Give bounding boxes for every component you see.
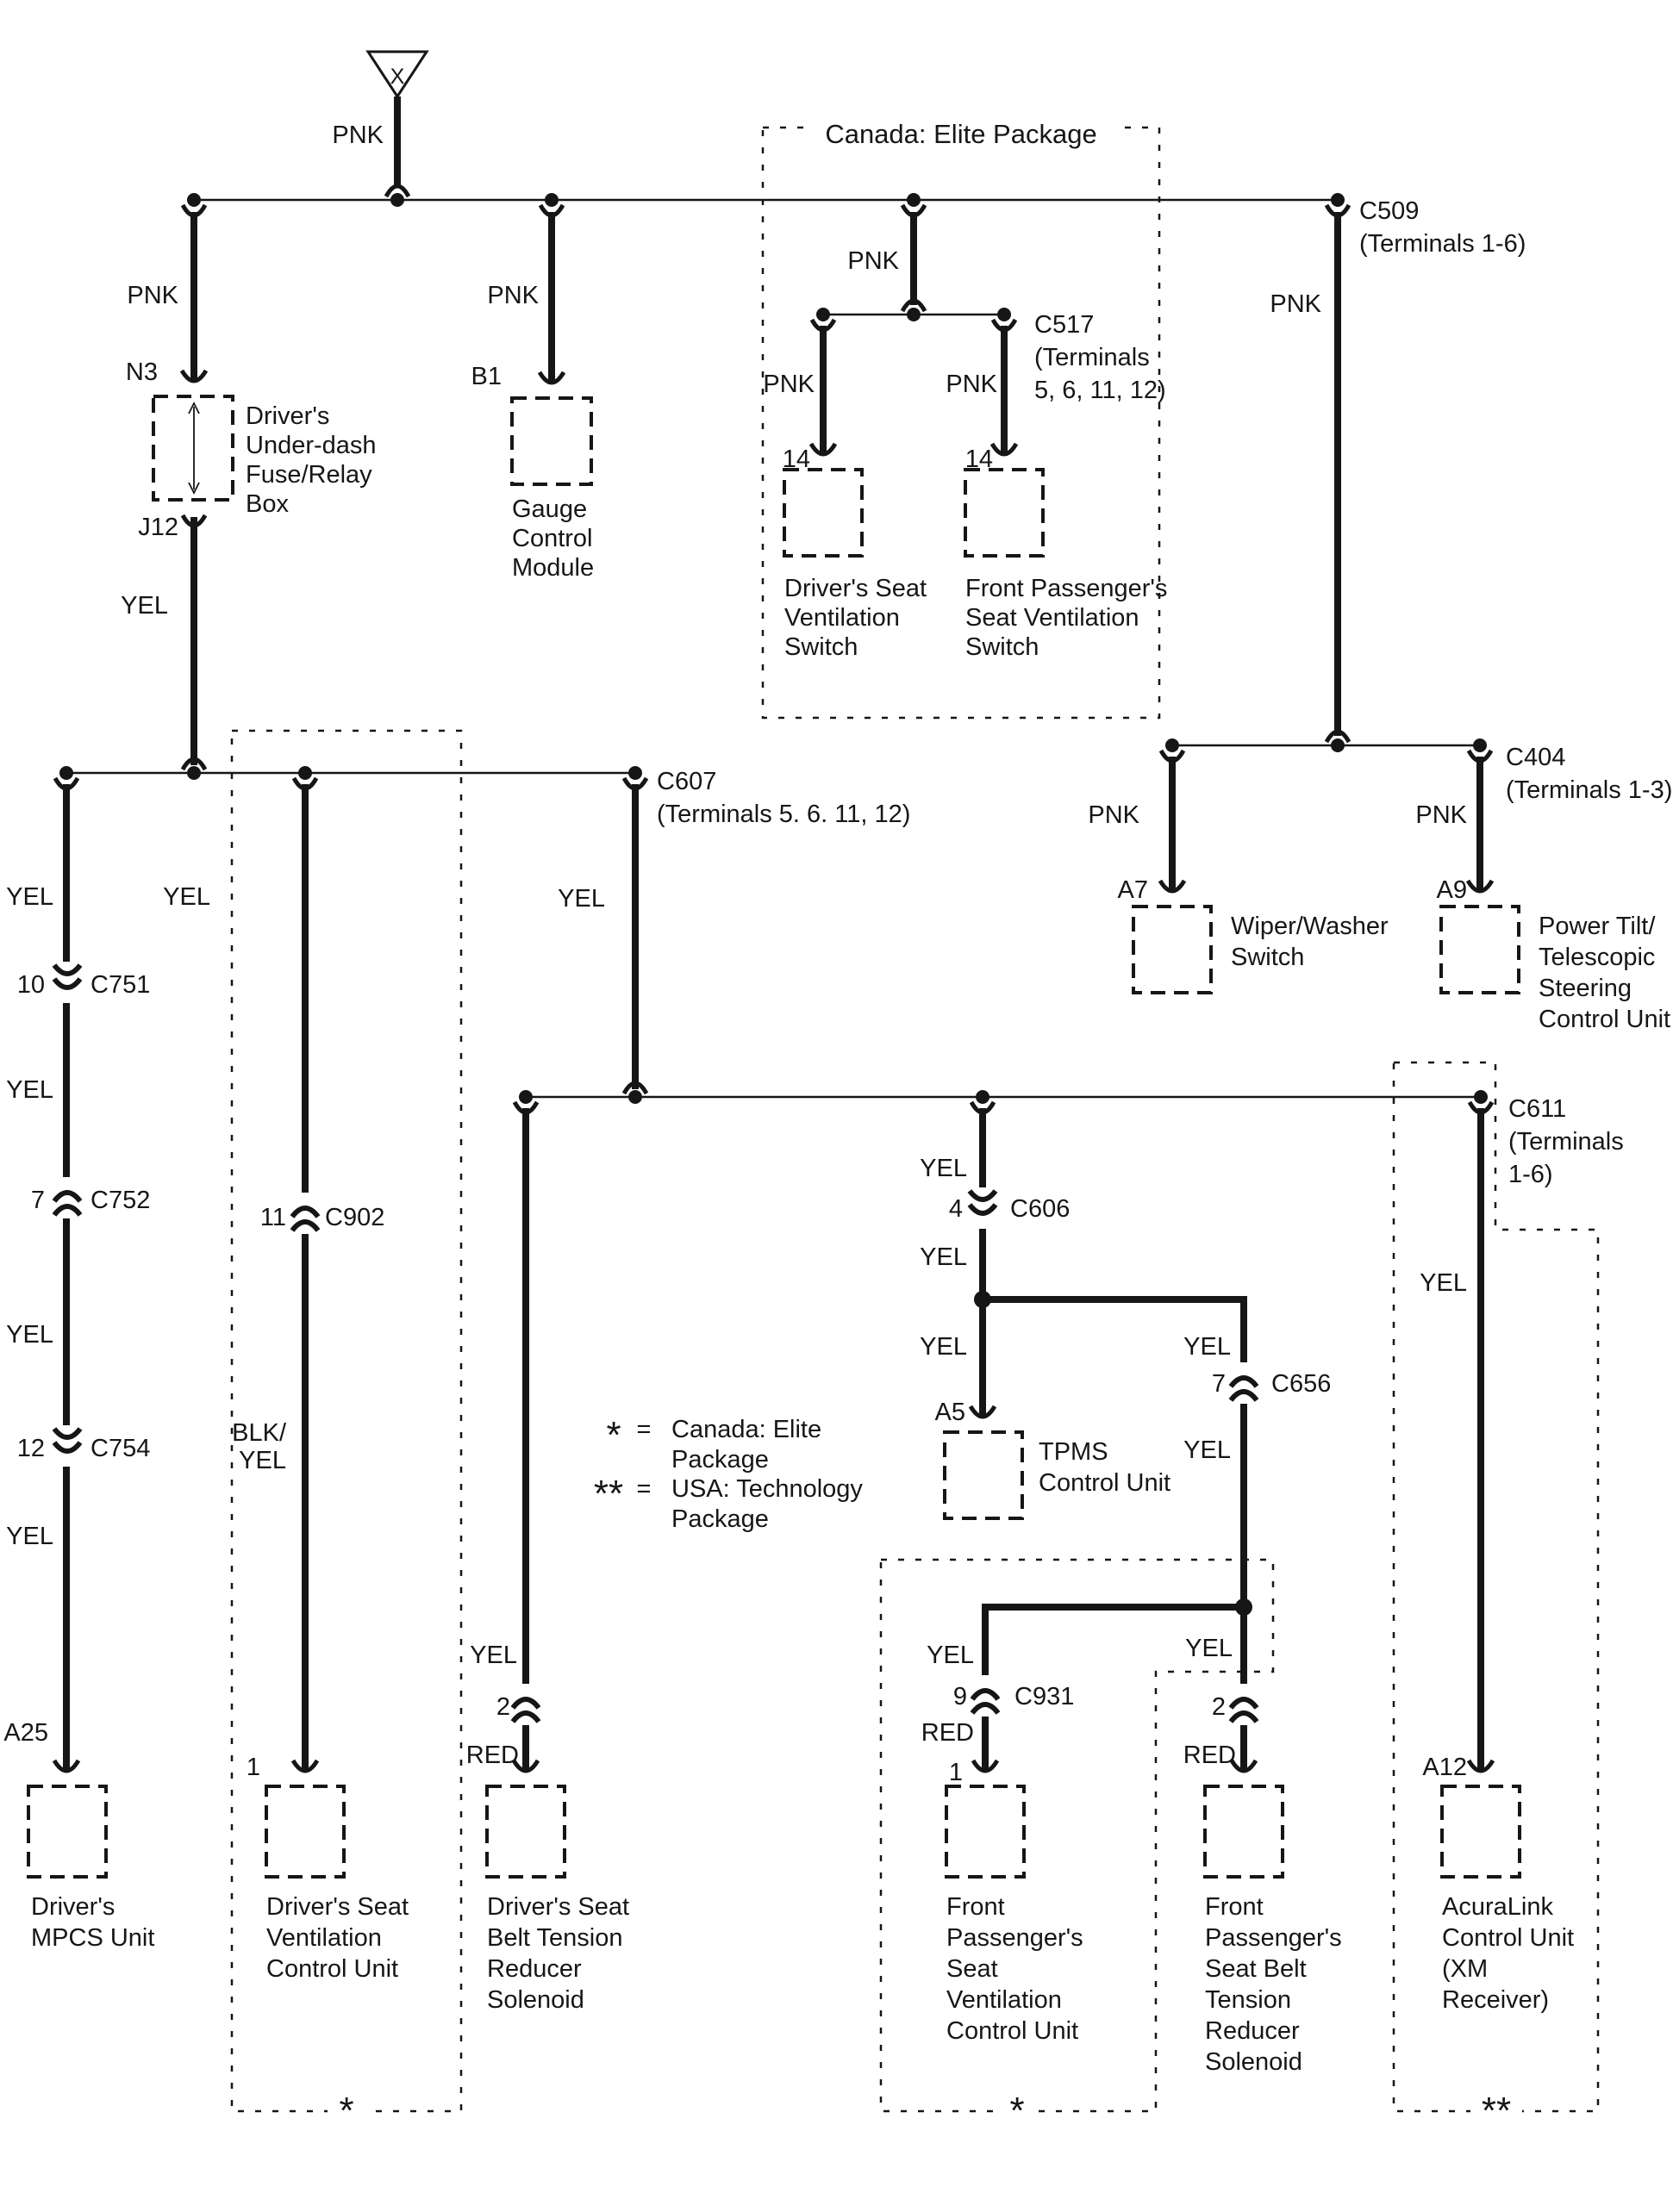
pin-label-1: 1 bbox=[949, 1759, 963, 1786]
component-label-acuralink: (XM bbox=[1442, 1955, 1488, 1983]
component-label-driver-belt: Belt Tension bbox=[487, 1924, 622, 1952]
component-label-driver-belt: Solenoid bbox=[487, 1986, 584, 2014]
wire-color-label: YEL bbox=[6, 1076, 53, 1104]
junction-dot bbox=[628, 1090, 642, 1104]
pin-label-10: 10 bbox=[17, 971, 45, 999]
component-box-front-vent-switch bbox=[965, 470, 1043, 556]
junction-dot bbox=[187, 766, 201, 780]
wiring-diagram-canvas: Canada: Elite Package * * ** bbox=[0, 0, 1673, 2212]
component-label-tilt: Steering bbox=[1539, 975, 1632, 1002]
wire-color-label: PNK bbox=[1088, 801, 1139, 829]
double-star-marker-acuralink: ** bbox=[1482, 2090, 1511, 2132]
component-label-gauge: Module bbox=[512, 554, 594, 582]
connector-label-c606: C606 bbox=[1010, 1195, 1070, 1223]
pin-label-a25: A25 bbox=[3, 1719, 48, 1747]
component-label-gauge: Control bbox=[512, 525, 593, 552]
component-label-wiper: Wiper/Washer bbox=[1231, 913, 1389, 940]
wire-color-label: PNK bbox=[127, 282, 178, 309]
component-label-driver-belt: Driver's Seat bbox=[487, 1893, 629, 1921]
component-label-fuse-box: Under-dash bbox=[246, 432, 377, 459]
pin-label-j12: J12 bbox=[138, 514, 178, 541]
junction-dot bbox=[59, 766, 73, 780]
legend-usa-line1: USA: Technology bbox=[671, 1475, 863, 1503]
power-source-label: X bbox=[390, 65, 405, 89]
component-label-driver-vent-cu: Ventilation bbox=[266, 1924, 382, 1952]
component-label-fuse-box: Box bbox=[246, 490, 289, 518]
connector-label-c607: C607 bbox=[657, 768, 716, 795]
component-label-fuse-box: Fuse/Relay bbox=[246, 461, 372, 489]
connector-gap bbox=[1239, 1362, 1249, 1404]
wire-color-label: PNK bbox=[946, 371, 997, 398]
wire-color-label: YEL bbox=[163, 883, 210, 911]
pin-label-2: 2 bbox=[1212, 1693, 1226, 1721]
pin-label-7: 7 bbox=[31, 1187, 45, 1214]
junction-dot bbox=[1331, 738, 1345, 752]
legend-equals: = bbox=[637, 1416, 652, 1443]
junction-dot bbox=[390, 193, 404, 207]
junction-dot bbox=[1474, 1090, 1488, 1104]
pin-label-12: 12 bbox=[17, 1435, 45, 1462]
legend: * = Canada: Elite Package ** = USA: Tech… bbox=[594, 1414, 864, 1533]
pin-labels: N3 J12 B1 14 14 A7 A9 10 7 12 A25 11 1 2… bbox=[3, 358, 1467, 1786]
package-title-canada-elite: Canada: Elite Package bbox=[825, 119, 1096, 149]
connector-gap bbox=[62, 1425, 72, 1467]
connector-label-c754: C754 bbox=[91, 1435, 150, 1462]
component-label-wiper: Switch bbox=[1231, 944, 1304, 971]
component-labels: Driver's Under-dash Fuse/Relay Box Gauge… bbox=[31, 402, 1670, 2076]
component-label-front-belt: Seat Belt bbox=[1205, 1955, 1307, 1983]
connector-gap bbox=[62, 1177, 72, 1218]
wire-color-label: PNK bbox=[847, 247, 899, 275]
junction-dot bbox=[519, 1090, 533, 1104]
component-label-front-belt: Front bbox=[1205, 1893, 1264, 1921]
connector-label-c517: C517 bbox=[1034, 311, 1094, 339]
junction-dot bbox=[187, 193, 201, 207]
package-boxes: Canada: Elite Package * * ** bbox=[232, 115, 1598, 2132]
component-label-acuralink: AcuraLink bbox=[1442, 1893, 1553, 1921]
component-label-tilt: Power Tilt/ bbox=[1539, 913, 1656, 940]
component-label-front-belt: Solenoid bbox=[1205, 2048, 1302, 2076]
component-label-tpms: TPMS bbox=[1039, 1438, 1108, 1466]
junction-dot bbox=[997, 308, 1011, 321]
connector-label-c931: C931 bbox=[1014, 1683, 1074, 1710]
junction-dot bbox=[907, 193, 921, 207]
wire-color-label: PNK bbox=[487, 282, 539, 309]
wire-color-label: YEL bbox=[470, 1642, 517, 1669]
wire-color-label: YEL bbox=[920, 1333, 967, 1361]
component-box-driver-vent-cu bbox=[266, 1786, 344, 1877]
wiring-diagram-page: Canada: Elite Package * * ** bbox=[0, 0, 1673, 2212]
wire-color-label: YEL bbox=[6, 1321, 53, 1349]
component-label-tilt: Telescopic bbox=[1539, 944, 1655, 971]
legend-double-star: ** bbox=[594, 1473, 623, 1515]
wire-color-label: YEL bbox=[121, 592, 168, 620]
pin-label-a12: A12 bbox=[1422, 1754, 1467, 1781]
legend-usa-line2: Package bbox=[671, 1505, 769, 1533]
connector-label-c509-terminals: (Terminals 1-6) bbox=[1359, 230, 1526, 258]
component-box-front-vent-cu bbox=[946, 1786, 1024, 1877]
pin-label-1: 1 bbox=[247, 1754, 260, 1781]
legend-canada-line1: Canada: Elite bbox=[671, 1416, 821, 1443]
wire-color-label: YEL bbox=[927, 1642, 974, 1669]
pin-label-b1: B1 bbox=[471, 363, 502, 390]
pin-label-14: 14 bbox=[783, 446, 810, 473]
component-label-front-vent-cu: Passenger's bbox=[946, 1924, 1083, 1952]
connector-gap bbox=[1239, 1684, 1249, 1725]
connector-gap bbox=[980, 1675, 990, 1717]
junction-dot bbox=[1331, 193, 1345, 207]
component-box-mpcs bbox=[28, 1786, 106, 1877]
component-label-driver-vent-cu: Driver's Seat bbox=[266, 1893, 409, 1921]
component-box-driver-belt bbox=[487, 1786, 565, 1877]
component-label-front-vent-cu: Seat bbox=[946, 1955, 998, 1983]
component-label-driver-vent-switch: Switch bbox=[784, 633, 858, 661]
wire-color-label: YEL bbox=[558, 885, 605, 913]
component-label-fuse-box: Driver's bbox=[246, 402, 329, 430]
component-label-tpms: Control Unit bbox=[1039, 1469, 1170, 1497]
component-box-wiper-switch bbox=[1133, 907, 1211, 993]
pin-label-4: 4 bbox=[949, 1195, 963, 1223]
wire-color-label: YEL bbox=[1183, 1333, 1231, 1361]
connector-label-c509: C509 bbox=[1359, 197, 1419, 225]
component-label-acuralink: Control Unit bbox=[1442, 1924, 1574, 1952]
component-label-mpcs: Driver's bbox=[31, 1893, 115, 1921]
pin-label-n3: N3 bbox=[126, 358, 158, 386]
power-source-symbol: X bbox=[368, 52, 427, 97]
inline-connectors bbox=[54, 962, 1257, 1725]
wire-color-label: PNK bbox=[1270, 290, 1321, 318]
wire-color-label: YEL bbox=[6, 883, 53, 911]
wire-color-label: RED bbox=[1183, 1742, 1236, 1769]
pin-label-a5: A5 bbox=[935, 1399, 965, 1426]
connector-label-c752: C752 bbox=[91, 1187, 150, 1214]
wire-color-label: YEL bbox=[1183, 1436, 1231, 1464]
component-label-driver-belt: Reducer bbox=[487, 1955, 582, 1983]
component-box-driver-vent-switch bbox=[784, 470, 862, 556]
junction-dot bbox=[1165, 738, 1179, 752]
pin-label-9: 9 bbox=[953, 1683, 967, 1710]
wire-color-label: YEL bbox=[920, 1155, 967, 1182]
component-box-gauge-module bbox=[512, 398, 591, 484]
component-label-tilt: Control Unit bbox=[1539, 1006, 1670, 1033]
connector-label-c607-terminals: (Terminals 5. 6. 11, 12) bbox=[657, 801, 910, 828]
component-label-front-belt: Passenger's bbox=[1205, 1924, 1342, 1952]
wire-color-label: YEL bbox=[920, 1243, 967, 1271]
component-label-front-vent-cu: Ventilation bbox=[946, 1986, 1062, 2014]
component-label-front-belt: Tension bbox=[1205, 1986, 1291, 2014]
connector-gap bbox=[977, 1187, 988, 1229]
pin-label-7: 7 bbox=[1212, 1370, 1226, 1398]
component-label-front-vent-switch: Switch bbox=[965, 633, 1039, 661]
wire-color-label: YEL bbox=[1420, 1269, 1467, 1297]
wire-color-label: PNK bbox=[763, 371, 815, 398]
legend-canada-line2: Package bbox=[671, 1446, 769, 1474]
package-box-double-star bbox=[1394, 1062, 1598, 2111]
wire-color-label: RED bbox=[466, 1742, 519, 1769]
component-label-front-belt: Reducer bbox=[1205, 2017, 1300, 2045]
component-label-driver-vent-cu: Control Unit bbox=[266, 1955, 398, 1983]
component-box-tilt-unit bbox=[1441, 907, 1519, 993]
junction-dot bbox=[298, 766, 312, 780]
junction-dot-splice bbox=[1235, 1598, 1252, 1616]
component-label-front-vent-cu: Control Unit bbox=[946, 2017, 1078, 2045]
junction-dot-splice bbox=[974, 1291, 991, 1308]
component-label-mpcs: MPCS Unit bbox=[31, 1924, 154, 1952]
connector-label-c902: C902 bbox=[325, 1204, 384, 1231]
pin-label-11: 11 bbox=[260, 1204, 286, 1231]
junction-dot bbox=[1473, 738, 1487, 752]
wire-color-label: YEL bbox=[1185, 1635, 1233, 1662]
component-box-front-belt bbox=[1205, 1786, 1283, 1877]
wire-color-label: YEL bbox=[239, 1447, 286, 1474]
wire-color-label: YEL bbox=[6, 1523, 53, 1550]
pin-label-14: 14 bbox=[965, 446, 993, 473]
star-marker-front: * bbox=[1009, 2090, 1024, 2132]
connector-label-c404: C404 bbox=[1506, 744, 1565, 771]
star-marker-driver: * bbox=[339, 2090, 353, 2132]
wire-color-label: BLK/ bbox=[232, 1419, 287, 1447]
component-label-driver-vent-switch: Driver's Seat bbox=[784, 575, 927, 602]
connector-label-c611-terminals-1: (Terminals bbox=[1508, 1128, 1624, 1156]
component-label-driver-vent-switch: Ventilation bbox=[784, 604, 900, 632]
component-label-front-vent-switch: Front Passenger's bbox=[965, 575, 1167, 602]
component-label-acuralink: Receiver) bbox=[1442, 1986, 1549, 2014]
pin-label-2: 2 bbox=[496, 1693, 510, 1721]
junction-dot bbox=[907, 308, 921, 321]
component-label-front-vent-cu: Front bbox=[946, 1893, 1005, 1921]
legend-equals: = bbox=[637, 1475, 652, 1503]
connector-label-c517-terminals-2: 5, 6, 11, 12) bbox=[1034, 377, 1166, 404]
connector-label-c404-terminals: (Terminals 1-3) bbox=[1506, 776, 1672, 804]
component-box-fuse-relay bbox=[153, 396, 233, 500]
junction-dot bbox=[976, 1090, 989, 1104]
legend-star: * bbox=[606, 1414, 621, 1456]
connector-gap bbox=[300, 1193, 310, 1234]
wire-color-label: RED bbox=[921, 1719, 974, 1747]
wire-color-label: PNK bbox=[1415, 801, 1467, 829]
connector-label-c611: C611 bbox=[1508, 1095, 1566, 1123]
connector-label-c656: C656 bbox=[1271, 1370, 1331, 1398]
component-label-front-vent-switch: Seat Ventilation bbox=[965, 604, 1139, 632]
component-label-gauge: Gauge bbox=[512, 495, 587, 523]
connector-gap bbox=[521, 1684, 531, 1725]
connector-label-c751: C751 bbox=[91, 971, 150, 999]
connector-label-c611-terminals-2: 1-6) bbox=[1508, 1161, 1553, 1188]
connector-label-c517-terminals-1: (Terminals bbox=[1034, 344, 1150, 371]
pin-label-a9: A9 bbox=[1437, 876, 1467, 904]
component-box-tpms bbox=[945, 1432, 1022, 1518]
junction-dot bbox=[628, 766, 642, 780]
connector-gap bbox=[62, 962, 72, 1003]
component-box-acuralink bbox=[1442, 1786, 1520, 1877]
junction-dot bbox=[816, 308, 830, 321]
wire-color-label: PNK bbox=[332, 122, 384, 149]
junction-dot bbox=[545, 193, 559, 207]
component-boxes bbox=[28, 396, 1520, 1877]
pin-label-a7: A7 bbox=[1118, 876, 1148, 904]
